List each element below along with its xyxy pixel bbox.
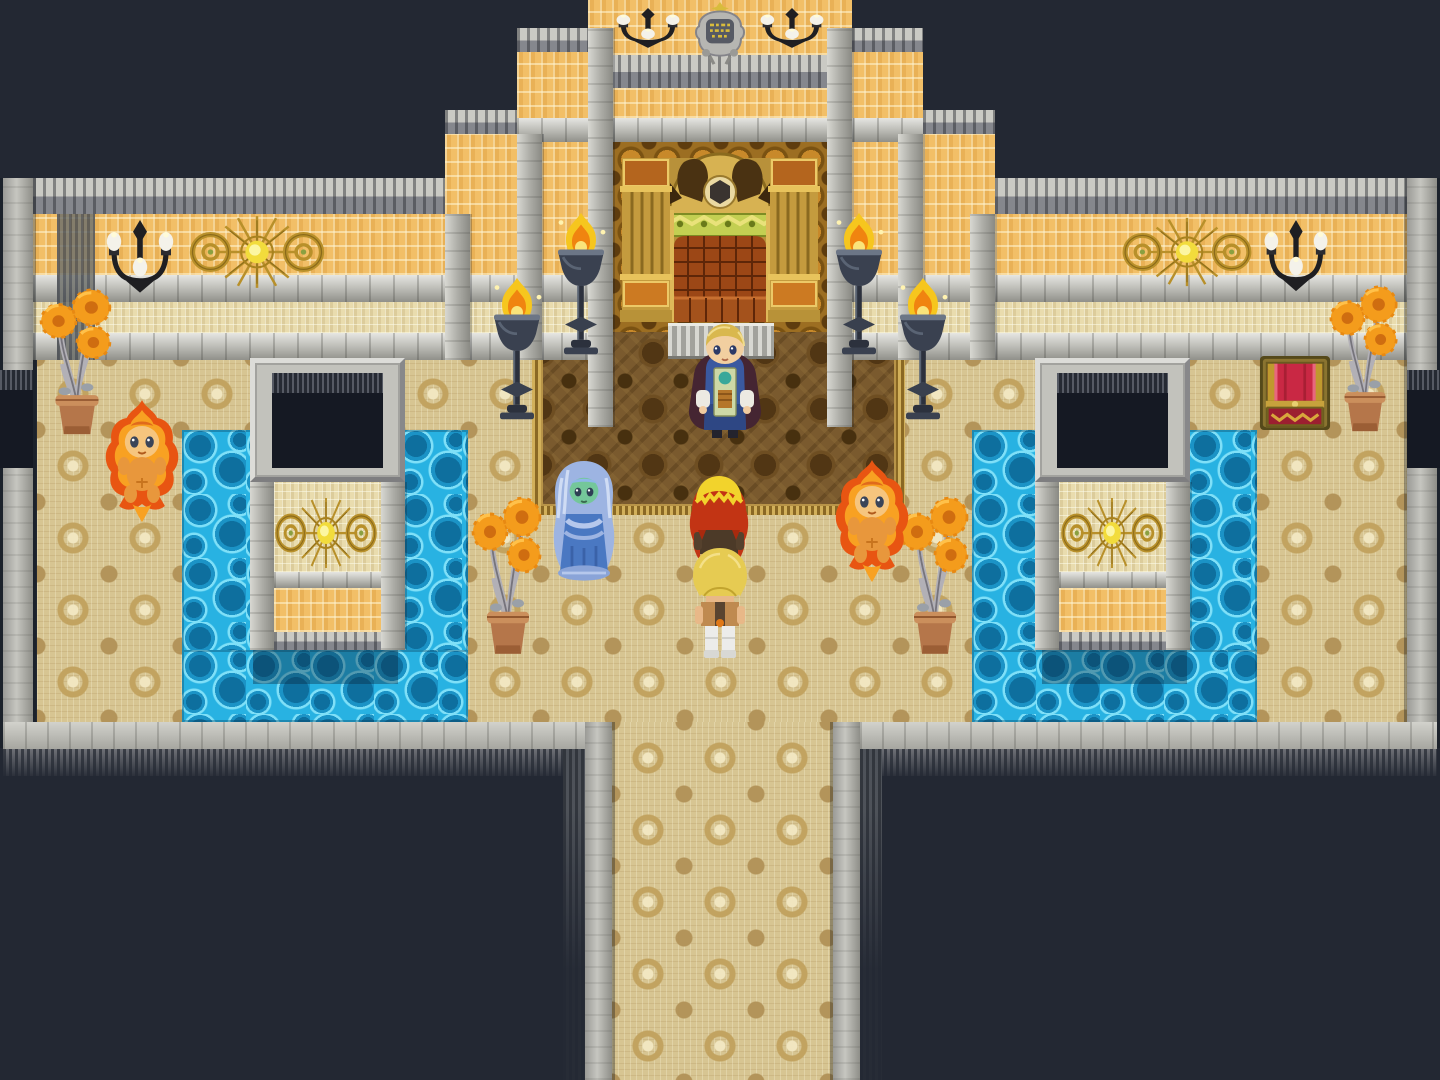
- sun-ornament-left-wall: [183, 210, 331, 294]
- party-member-blonde[interactable]: [680, 544, 760, 658]
- game-viewport[interactable]: [0, 0, 1440, 1080]
- pillar-right-col-east: [1166, 482, 1190, 650]
- potted-plant-center-left: [468, 494, 548, 658]
- pilaster-outer-left: [445, 214, 470, 360]
- torch-left-inner: [549, 211, 613, 361]
- sun-ornament-left-pillar: [270, 492, 382, 574]
- wing-right-cap: [995, 178, 1407, 214]
- fire-spirit-right[interactable]: [830, 458, 914, 586]
- corridor-wall-west: [585, 722, 612, 1080]
- water-spirit[interactable]: [544, 458, 624, 582]
- bottom-fringe-right: [860, 749, 1437, 776]
- pillar-right-goldband: [1059, 588, 1166, 632]
- step3-right-cap: [923, 110, 995, 134]
- corridor-wall-east: [833, 722, 860, 1080]
- edge-window-east: [1407, 370, 1440, 468]
- royal-crest: [690, 2, 750, 66]
- torch-right-inner: [827, 211, 891, 361]
- pillar-left-window: [272, 373, 383, 468]
- fire-spirit-left[interactable]: [100, 398, 184, 526]
- step2-right-cap: [852, 28, 923, 52]
- corridor-floor: [612, 722, 833, 1080]
- tower-mid-wall: [588, 88, 852, 118]
- edge-window-west: [0, 370, 33, 468]
- step3-left-cap: [445, 110, 517, 134]
- pool-left-pillar-shadow: [253, 650, 398, 684]
- bottom-wall-right: [860, 722, 1437, 749]
- pillar-right-window: [1057, 373, 1168, 468]
- pilaster-outer-right: [970, 214, 995, 360]
- corridor-fringe-west: [563, 749, 585, 1080]
- throne[interactable]: [618, 138, 822, 336]
- pillar-right-ledge: [1059, 572, 1166, 588]
- bottom-fringe-left: [3, 749, 585, 776]
- pillar-left-ledge: [274, 572, 381, 588]
- pillar-left-col-east: [381, 482, 405, 650]
- wing-left-cap: [33, 178, 445, 214]
- bottom-wall-left: [3, 722, 585, 749]
- sun-ornament-right-wall: [1116, 212, 1258, 292]
- pillar-left-base: [274, 632, 381, 650]
- torch-left-outer: [485, 276, 549, 426]
- chandelier-right: [756, 8, 828, 64]
- step2-left-cap: [517, 28, 588, 52]
- torch-right-outer: [891, 276, 955, 426]
- potted-plant-far-right: [1326, 283, 1404, 435]
- chandelier-left: [612, 8, 684, 64]
- pool-right-pillar-shadow: [1042, 650, 1187, 684]
- sun-ornament-right-pillar: [1056, 492, 1168, 574]
- king[interactable]: [682, 320, 768, 440]
- pillar-left-goldband: [274, 588, 381, 632]
- treasure-chest[interactable]: [1258, 354, 1332, 432]
- candelabra-right: [1260, 220, 1332, 320]
- pillar-right-base: [1059, 632, 1166, 650]
- corridor-fringe-east: [860, 749, 882, 1080]
